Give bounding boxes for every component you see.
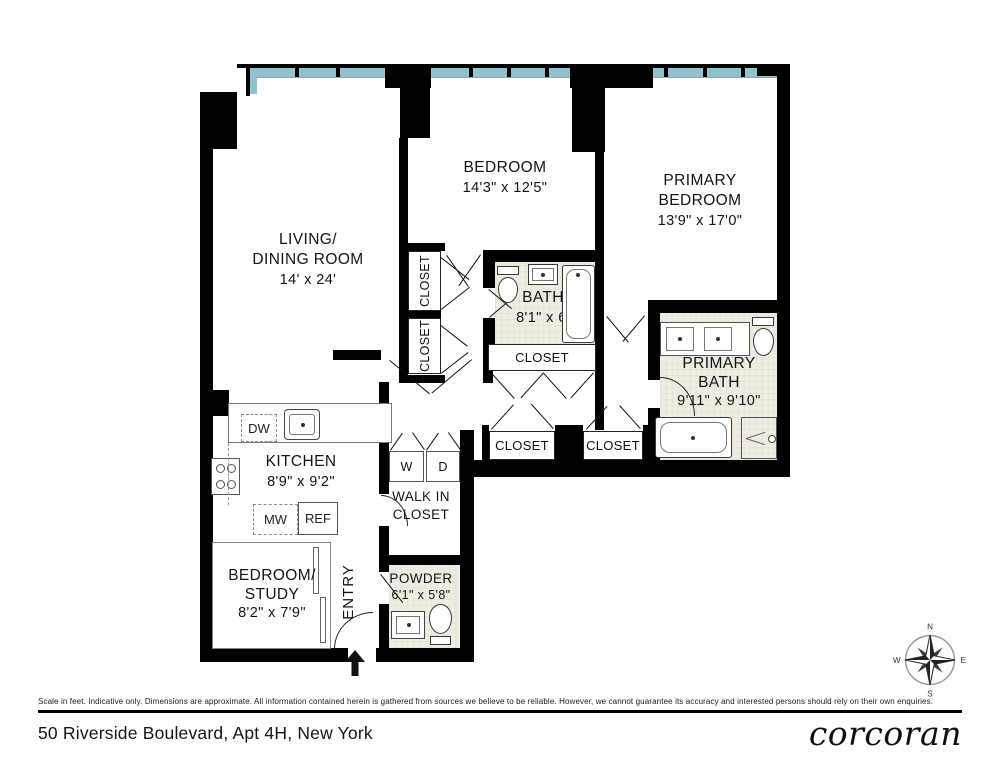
shower: [741, 417, 777, 459]
closet-box: CLOSET: [408, 318, 441, 374]
wall-segment: [376, 648, 467, 662]
door-swing: [491, 404, 514, 429]
door-swing: [619, 405, 640, 429]
wall-segment: [246, 68, 250, 96]
toilet-tank: [752, 317, 774, 326]
wall-segment: [399, 375, 445, 383]
window-mullion: [295, 66, 299, 77]
room-name: BEDROOM: [659, 191, 742, 211]
wall-segment: [399, 138, 408, 383]
wall-segment: [648, 300, 790, 313]
wall-segment: [483, 250, 495, 288]
sink: [391, 611, 425, 639]
wall-segment: [468, 460, 790, 477]
wall-segment: [333, 350, 381, 360]
closet-label: CLOSET: [515, 350, 569, 365]
room-name: BATH: [698, 373, 740, 392]
wall-segment: [200, 92, 237, 149]
refrigerator-box: REF: [298, 502, 338, 535]
room-name: BATH: [522, 288, 564, 308]
door-swing: [412, 432, 425, 450]
room-label-primary-bedroom: PRIMARY BEDROOM 13'9" x 17'0": [630, 168, 770, 234]
vanity-counter: [660, 322, 750, 356]
closet-label: CLOSET: [418, 320, 432, 372]
room-name: BEDROOM: [464, 158, 547, 178]
room-name: PRIMARY: [663, 171, 736, 191]
wall-segment: [200, 390, 229, 416]
door-swing: [571, 372, 594, 398]
closet-label: CLOSET: [586, 438, 640, 453]
wall-segment: [399, 243, 445, 251]
wall-segment: [408, 311, 441, 318]
corcoran-logo: corcoran: [562, 714, 962, 753]
closet-box: CLOSET: [488, 344, 596, 371]
room-dimensions: 13'9" x 17'0": [658, 211, 743, 231]
compass-north-label: N: [927, 623, 933, 632]
wall-segment: [200, 648, 348, 662]
window-mullion: [664, 66, 668, 77]
room-dimensions: 8'9" x 9'2": [267, 472, 335, 492]
window-mullion: [703, 66, 707, 77]
wall-segment: [572, 76, 605, 152]
compass-rose: N E S W: [893, 623, 967, 697]
wall-segment: [482, 425, 489, 461]
closet-label: CLOSET: [418, 255, 432, 307]
closet-box: CLOSET: [408, 251, 441, 311]
window-mullion: [336, 66, 340, 77]
closet-box: CLOSET: [583, 431, 643, 460]
room-label-living-dining: LIVING/ DINING ROOM 14' x 24': [233, 226, 383, 294]
footer-divider: [38, 710, 962, 713]
room-name: WALK IN: [392, 488, 450, 506]
wall-segment: [555, 425, 583, 461]
window-mullion: [741, 66, 745, 77]
bathtub: [562, 265, 595, 343]
closet-box: CLOSET: [489, 431, 555, 460]
washer-box: W: [389, 451, 424, 482]
window-sill-line: [255, 77, 777, 78]
door-swing: [491, 373, 514, 399]
door-swing: [441, 352, 468, 374]
floorplan-page: LIVING/ DINING ROOM 14' x 24' BEDROOM 14…: [0, 0, 1000, 772]
closet-label: CLOSET: [495, 438, 549, 453]
door-swing: [426, 433, 439, 451]
dryer-label: D: [438, 460, 447, 474]
compass-east-label: E: [961, 656, 967, 665]
wall-segment: [595, 150, 604, 430]
room-name: POWDER: [389, 570, 452, 587]
toilet-tank: [430, 636, 451, 645]
counter-dashed-edge: [228, 443, 231, 505]
door-swing: [521, 372, 544, 398]
room-name: DINING ROOM: [252, 250, 363, 270]
room-name: STUDY: [245, 585, 300, 604]
door-swing: [543, 373, 566, 399]
wall-segment: [400, 76, 430, 138]
room-label-powder: POWDER 6'1" x 5'8": [386, 569, 456, 605]
compass-south-label: S: [927, 689, 933, 697]
door-swing: [440, 325, 467, 347]
window-mullion: [469, 66, 473, 77]
room-label-bedroom-study-overlay: BEDROOM/ STUDY 8'2" x 7'9": [218, 562, 326, 626]
room-label-bedroom: BEDROOM 14'3" x 12'5": [432, 156, 578, 200]
room-name: BEDROOM/: [228, 566, 316, 585]
kitchen-sink: [284, 409, 320, 440]
room-name: PRIMARY: [682, 354, 755, 373]
entry-arrow-icon: [345, 650, 365, 676]
wall-segment: [777, 72, 790, 477]
room-name: KITCHEN: [266, 452, 337, 472]
room-dimensions: 14'3" x 12'5": [463, 178, 548, 198]
sink: [528, 264, 558, 285]
toilet-tank: [497, 266, 519, 275]
wall-segment: [483, 250, 603, 262]
window-mullion: [545, 66, 549, 77]
door-swing: [531, 404, 554, 429]
door-swing: [448, 432, 461, 450]
dishwasher-box: DW: [241, 414, 277, 442]
wall-segment: [379, 555, 470, 565]
disclaimer-text: Scale in feet. Indicative only. Dimensio…: [38, 697, 962, 706]
dishwasher-label: DW: [248, 421, 270, 436]
room-name: ENTRY: [339, 564, 359, 620]
window-band-vertical: [250, 68, 257, 94]
door-swing: [440, 257, 469, 280]
room-dimensions: 14' x 24': [280, 270, 337, 290]
microwave-label: MW: [264, 512, 287, 527]
compass-west-label: W: [893, 656, 901, 665]
room-label-kitchen: KITCHEN 8'9" x 9'2": [243, 449, 359, 495]
room-dimensions: 8'2" x 7'9": [238, 604, 306, 623]
bathtub: [655, 417, 732, 458]
room-name: LIVING/: [279, 230, 337, 250]
window-mullion: [507, 66, 511, 77]
wall-segment: [460, 430, 474, 662]
refrigerator-label: REF: [305, 511, 331, 526]
stove: [211, 458, 240, 495]
microwave-box: MW: [253, 504, 298, 535]
door-swing: [458, 254, 481, 286]
door-swing: [441, 287, 470, 310]
listing-address: 50 Riverside Boulevard, Apt 4H, New York: [38, 723, 373, 744]
door-swing: [622, 315, 645, 342]
washer-label: W: [400, 460, 412, 474]
dryer-box: D: [426, 451, 460, 482]
window-band: [255, 68, 777, 77]
wall-segment: [648, 313, 660, 380]
